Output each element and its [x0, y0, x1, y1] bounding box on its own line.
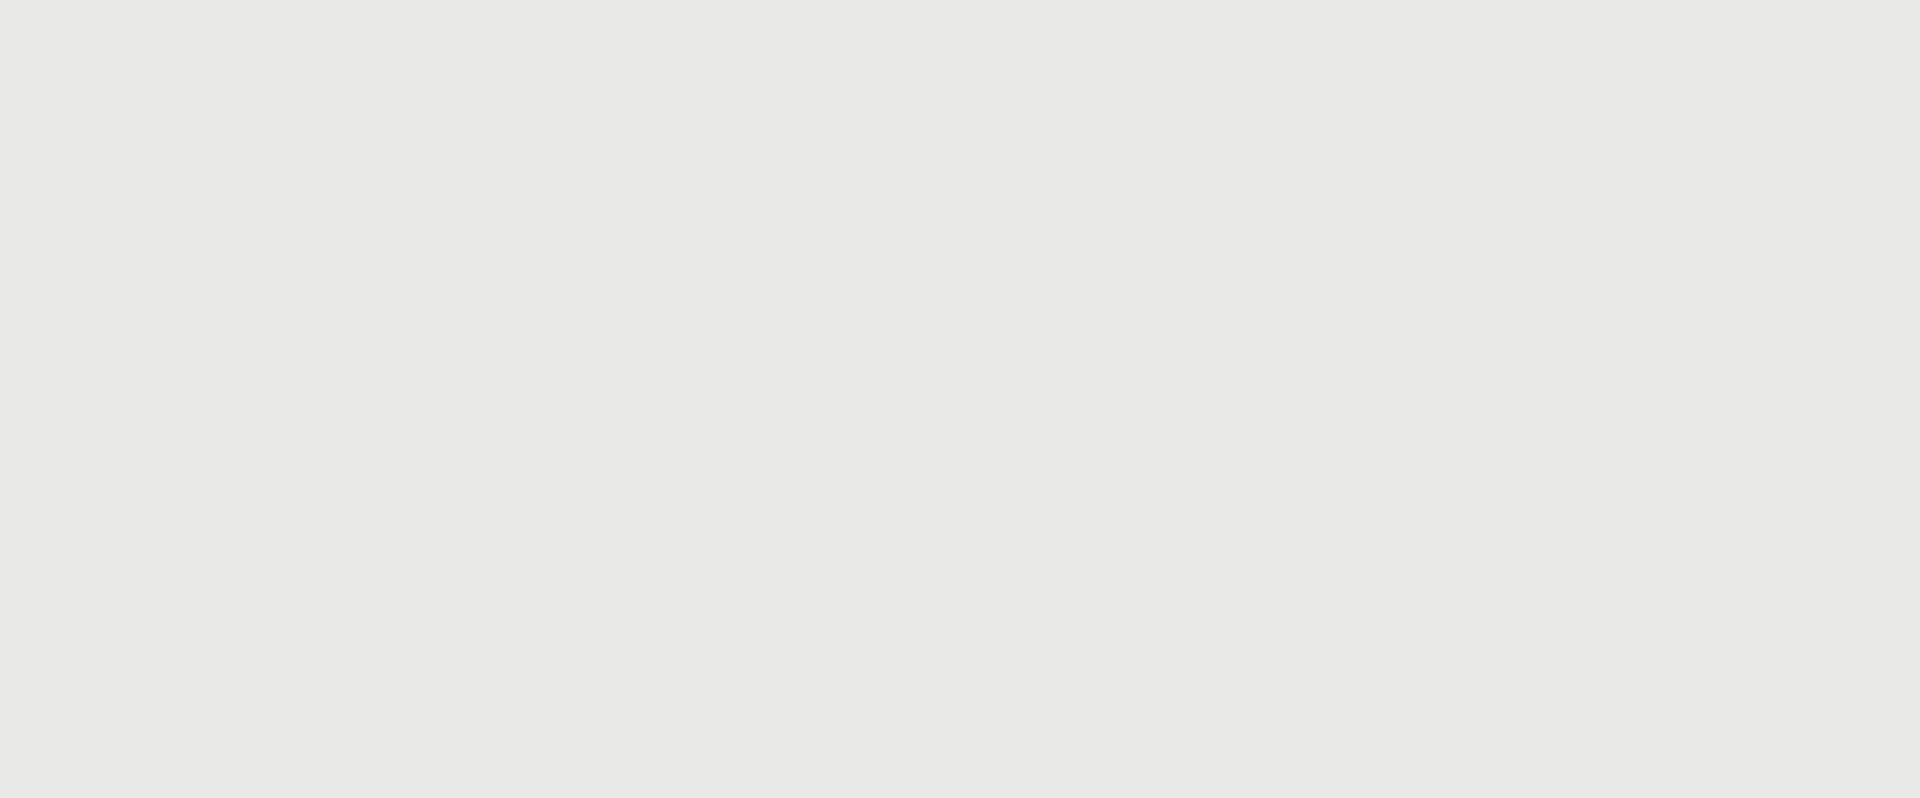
site-plan-drawing — [0, 0, 1920, 798]
plan-canvas — [0, 0, 1920, 798]
